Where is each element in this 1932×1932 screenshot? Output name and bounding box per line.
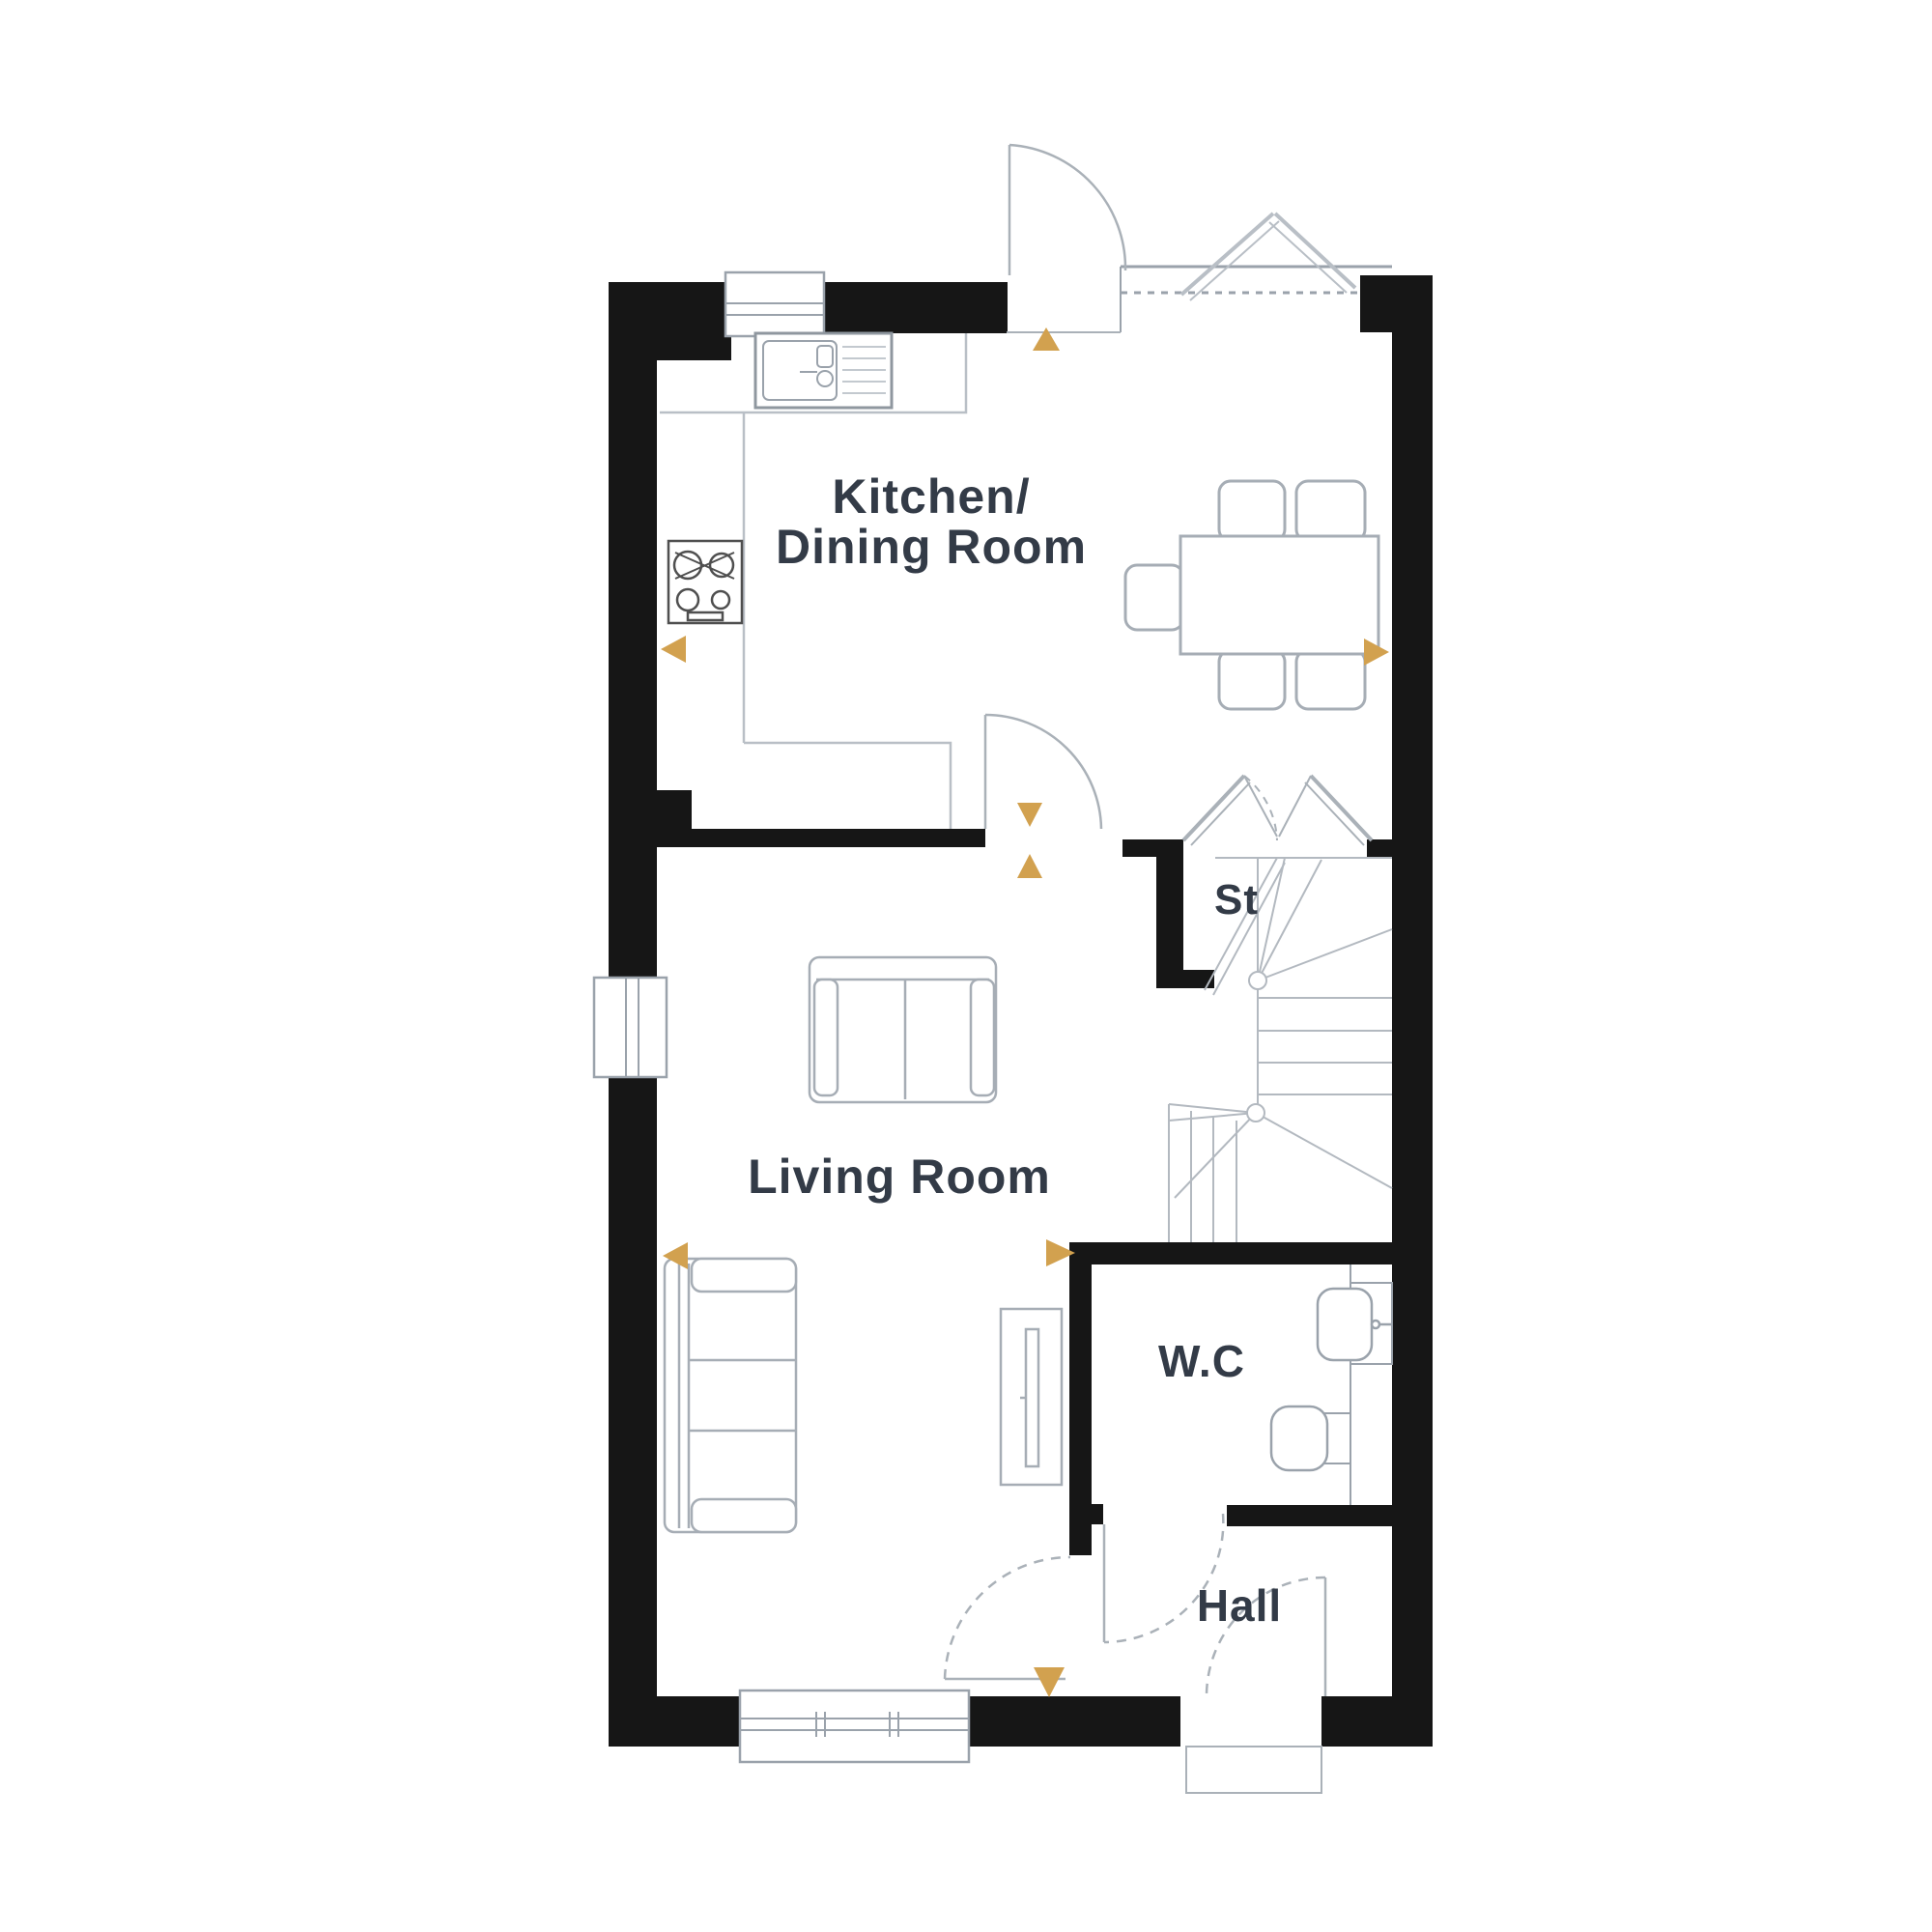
sofa-three-seat (665, 1259, 796, 1532)
dining-chair-top-left (1219, 481, 1285, 541)
wall-wc-bottom (1227, 1505, 1392, 1526)
label-wc: W.C (1158, 1336, 1245, 1386)
window-top-kitchen (725, 272, 824, 336)
arrow-left-kitchen-wall (661, 636, 686, 663)
kitchen-hob (668, 541, 742, 623)
arrow-up-garden-door (1033, 327, 1060, 351)
dining-chair-top-right (1296, 481, 1365, 541)
wall-wc-left (1069, 1242, 1092, 1555)
open-casement-icon (1181, 213, 1355, 300)
front-door-step (1186, 1747, 1321, 1793)
kitchen-sink-unit (755, 333, 892, 408)
staircase (1169, 858, 1392, 1242)
window-bottom-living (740, 1690, 969, 1762)
wall-wc-top (1069, 1242, 1392, 1264)
arrow-up-living-door (1017, 854, 1042, 878)
window-top-right-glazed-screen (1121, 267, 1392, 332)
window-left-living (594, 978, 667, 1077)
kitchen-fittings (660, 333, 966, 829)
arrow-down-hall-door (1034, 1667, 1065, 1697)
dining-chair-bottom-right (1296, 650, 1365, 709)
dining-table (1180, 536, 1378, 654)
wc-basin (1318, 1283, 1392, 1364)
dining-set (1125, 481, 1378, 709)
wall-bottom-right (1321, 1696, 1433, 1747)
stair-treads-upper (1258, 998, 1392, 1094)
dining-chair-head (1125, 565, 1183, 630)
stair-flight-lower (1169, 1104, 1256, 1242)
wall-store-top-stub (1122, 839, 1183, 857)
label-living-room: Living Room (748, 1150, 1051, 1204)
door-store-bifold (1183, 776, 1372, 845)
label-kitchen-line1: Kitchen/ (832, 469, 1030, 524)
wall-store-right-jamb (1367, 839, 1392, 857)
wc-fixtures (1271, 1264, 1392, 1505)
label-kitchen-line2: Dining Room (776, 520, 1087, 574)
door-living-to-hall (945, 1557, 1070, 1679)
stair-newel-bottom (1247, 1104, 1264, 1122)
stair-newel-top (1249, 972, 1266, 989)
dining-chair-bottom-left (1219, 650, 1285, 709)
floor-plan-page: Kitchen/ Dining Room Living Room St W.C … (0, 0, 1932, 1932)
wall-left-lower (609, 1076, 657, 1747)
wc-toilet (1271, 1406, 1350, 1470)
wall-store-bottom-stub (1156, 970, 1214, 988)
wall-nib-left-of-kitchen-divider (657, 790, 692, 829)
stair-winders-bottom (1169, 1113, 1392, 1198)
wall-store-left (1156, 857, 1183, 988)
door-kitchen-to-living (985, 715, 1101, 829)
wall-left-upper (609, 282, 657, 980)
door-garden (1007, 145, 1125, 332)
label-store: St (1214, 876, 1259, 923)
sofa-two-seat (810, 957, 996, 1102)
wall-top-mid (824, 282, 1008, 333)
wall-bottom-mid (969, 1696, 1180, 1747)
wall-right (1392, 275, 1433, 1747)
label-hall: Hall (1197, 1580, 1282, 1631)
wall-kitchen-living-divider (657, 829, 985, 847)
tv-unit (1001, 1309, 1062, 1485)
wall-wc-door-nib (1092, 1504, 1103, 1524)
arrow-down-kitchen-door (1017, 803, 1042, 827)
wall-bottom-left (609, 1696, 740, 1747)
floor-plan-drawing: Kitchen/ Dining Room Living Room St W.C … (0, 0, 1932, 1932)
